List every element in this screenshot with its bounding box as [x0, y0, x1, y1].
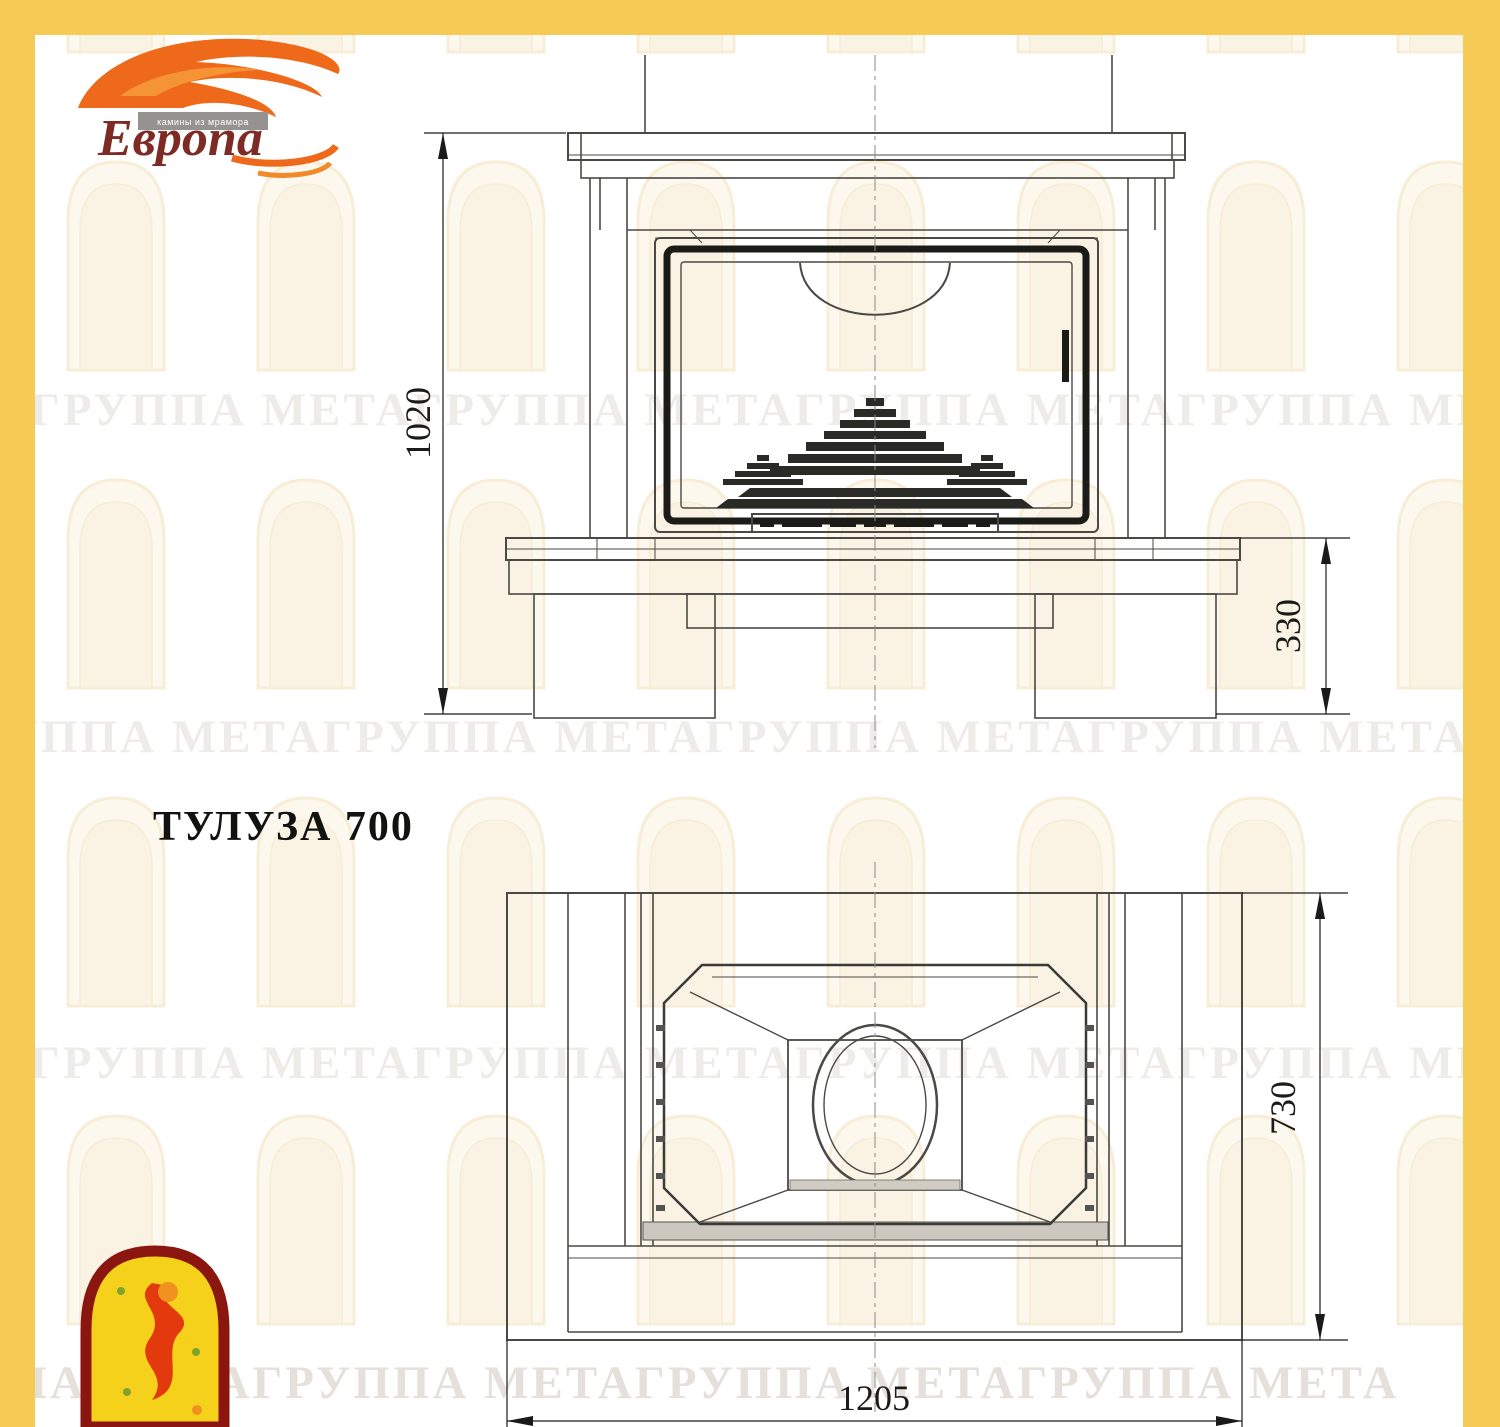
brand-tagline: камины из мрамора [157, 117, 249, 127]
page-title: ТУЛУЗА 700 [153, 804, 414, 850]
door-handle [1062, 330, 1069, 382]
watermark-text-row: ГРУППА МЕТАГРУППА МЕТАГРУППА МЕТАГРУППА … [0, 711, 1470, 763]
border-right [1463, 0, 1500, 1427]
dim-depth-label: 730 [1263, 1081, 1303, 1135]
border-left [0, 0, 35, 1427]
border-top [0, 0, 1500, 35]
dim-base-height-label: 330 [1268, 599, 1308, 653]
dim-height-label: 1020 [398, 387, 438, 459]
watermark-text-row: ГРУППА МЕТАГРУППА МЕТАГРУППА МЕТАГРУППА … [30, 384, 1500, 436]
dim-width-label: 1205 [838, 1378, 910, 1418]
page: ГРУППА МЕТАГРУППА МЕТАГРУППА МЕТАГРУППА … [0, 0, 1500, 1427]
fireplace-drawing-sheet: ГРУППА МЕТАГРУППА МЕТАГРУППА МЕТАГРУППА … [0, 0, 1500, 1427]
meta-emblem-icon [86, 1251, 224, 1427]
brand-tagline-ribbon: камины из мрамора [138, 112, 268, 130]
